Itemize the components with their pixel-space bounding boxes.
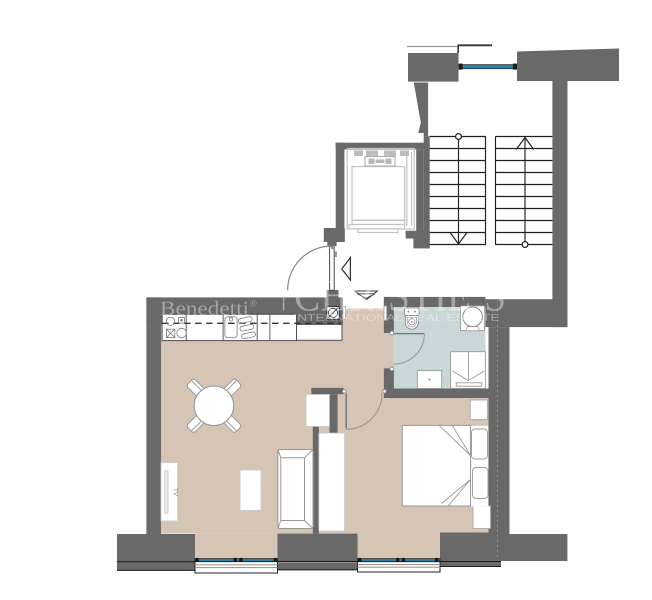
svg-text:TV: TV — [172, 488, 179, 497]
